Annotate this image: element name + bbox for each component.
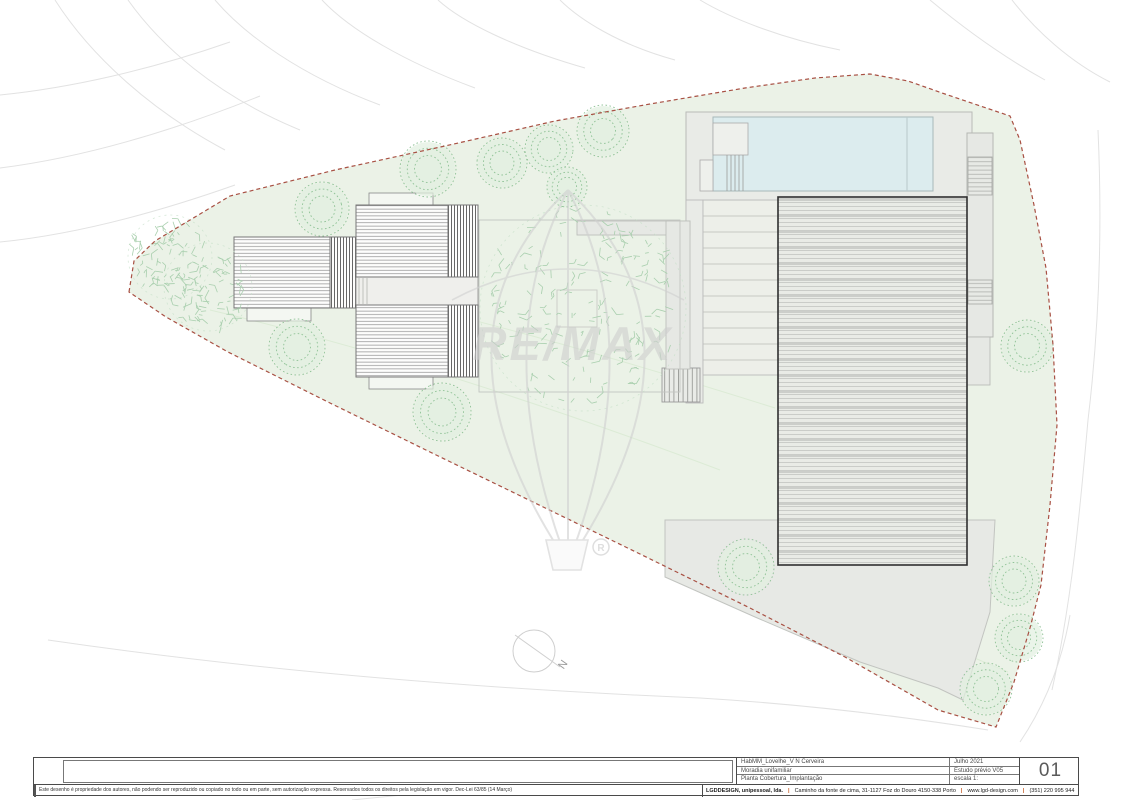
title-block: HabMM_Lovelhe_V N Cerveira Julho 2021 Mo…: [33, 757, 1079, 796]
villa-roof: [778, 197, 967, 565]
project-name: HabMM_Lovelhe_V N Cerveira: [737, 758, 949, 766]
copyright-disclaimer: Este desenho é propriedade dos autores, …: [34, 785, 703, 797]
contour-line: [930, 0, 1045, 80]
project-phase: Estudo prévio V05: [949, 767, 1020, 775]
east-stair: [968, 157, 992, 195]
balloon-basket: [546, 540, 588, 570]
building-type: Moradia unifamiliar: [737, 767, 949, 775]
contour-line: [1052, 420, 1088, 690]
company-phone: (351) 220 995 944: [1029, 786, 1078, 797]
contour-line: [215, 0, 380, 105]
table-row: Planta Cobertura_Implantação escala 1:: [737, 775, 1020, 784]
contour-line: [438, 0, 585, 68]
notes-box: [63, 760, 733, 783]
company-address: Caminho da fonte de cima, 31-1127 Foz do…: [795, 786, 956, 797]
contour-line: [322, 0, 475, 88]
project-date: Julho 2021: [949, 758, 1020, 766]
title-block-lower-row: Este desenho é propriedade dos autores, …: [34, 784, 1078, 797]
contour-line: [700, 0, 840, 50]
main-house: [356, 193, 478, 389]
contour-line: [0, 96, 260, 168]
sheet-number: 01: [1019, 758, 1081, 784]
drawing-title: Planta Cobertura_Implantação: [737, 775, 949, 784]
company-name: LGDDESIGN, unipessoal, lda.: [703, 786, 783, 797]
title-block-upper-row: HabMM_Lovelhe_V N Cerveira Julho 2021 Mo…: [34, 758, 1078, 784]
registered-mark: R: [597, 543, 605, 554]
separator: |: [1018, 786, 1030, 797]
project-info-table: HabMM_Lovelhe_V N Cerveira Julho 2021 Mo…: [736, 758, 1020, 784]
contour-line: [55, 0, 225, 150]
table-row: Moradia unifamiliar Estudo prévio V05: [737, 767, 1020, 776]
west-building: [234, 237, 357, 321]
contour-line: [560, 0, 675, 60]
drawing-scale: escala 1:: [949, 775, 1020, 784]
garden-stair: [662, 368, 700, 402]
site-plan-canvas: N RE/MAX R: [0, 0, 1131, 800]
separator: |: [956, 786, 968, 797]
table-row: HabMM_Lovelhe_V N Cerveira Julho 2021: [737, 758, 1020, 767]
contour-line: [128, 0, 300, 130]
contour-line: [1088, 130, 1100, 420]
company-strip: LGDDESIGN, unipessoal, lda. | Caminho da…: [703, 785, 1078, 797]
contour-line: [0, 42, 230, 95]
contour-line: [48, 640, 700, 698]
separator: |: [783, 786, 795, 797]
north-arrow: N: [513, 630, 571, 672]
east-wing: [967, 133, 993, 385]
north-label: N: [556, 658, 570, 671]
company-website: www.lgd-design.com: [967, 786, 1017, 797]
watermark-brand-text: RE/MAX: [473, 317, 674, 370]
